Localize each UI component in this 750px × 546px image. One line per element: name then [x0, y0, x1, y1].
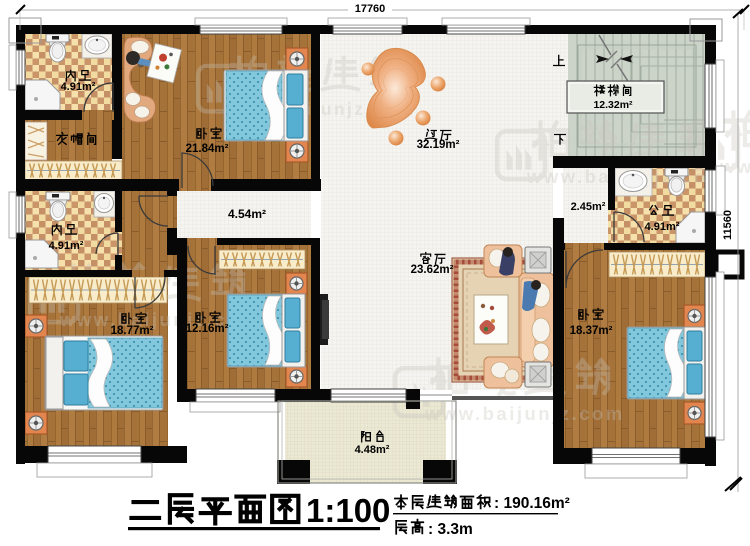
svg-text:17760: 17760 [355, 3, 386, 15]
svg-text:18.37m²: 18.37m² [570, 325, 613, 337]
svg-text:4.91m²: 4.91m² [49, 240, 84, 252]
svg-text:2.45m²: 2.45m² [571, 201, 606, 213]
svg-text:32.19m²: 32.19m² [417, 139, 460, 151]
svg-text:4.54m²: 4.54m² [228, 207, 266, 221]
svg-text:1:100: 1:100 [306, 492, 390, 529]
svg-text:12.16m²: 12.16m² [186, 323, 229, 335]
svg-text:4.91m²: 4.91m² [645, 221, 680, 233]
svg-text:: 190.16m²: : 190.16m² [494, 495, 570, 512]
svg-text:www.baijunjz.com: www.baijunjz.com [424, 403, 625, 424]
svg-text:21.84m²: 21.84m² [186, 143, 229, 155]
svg-text:23.62m²: 23.62m² [411, 264, 454, 276]
svg-text:: 3.3m: : 3.3m [428, 521, 473, 538]
svg-text:18.77m²: 18.77m² [111, 325, 154, 337]
svg-text:12.32m²: 12.32m² [593, 99, 633, 111]
svg-text:4.48m²: 4.48m² [355, 444, 390, 456]
svg-text:4.91m²: 4.91m² [61, 81, 96, 93]
svg-text:11560: 11560 [722, 210, 734, 240]
